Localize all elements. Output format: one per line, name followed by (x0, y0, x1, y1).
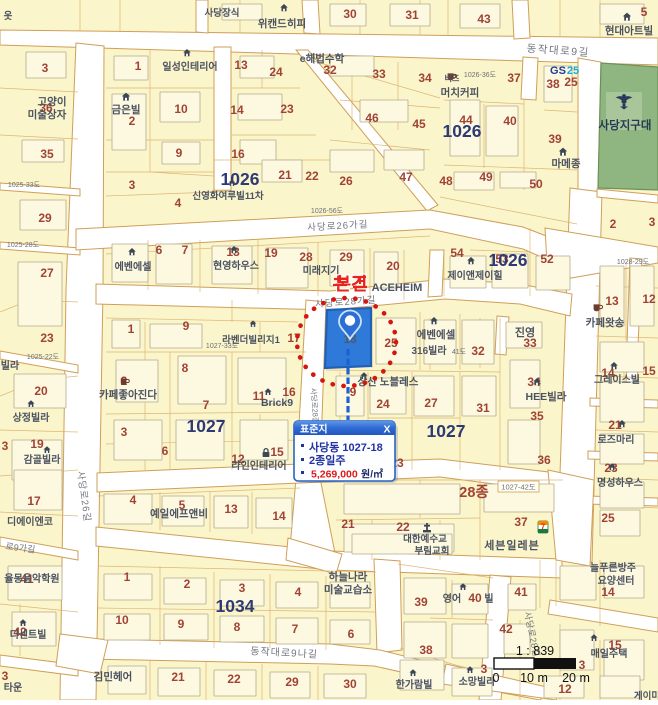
svg-text:원/㎡: 원/㎡ (361, 468, 383, 481)
svg-text:30: 30 (343, 7, 357, 21)
svg-text:52: 52 (540, 252, 554, 266)
svg-text:세븐일레븐: 세븐일레븐 (484, 538, 540, 552)
svg-text:Brick9: Brick9 (261, 397, 293, 409)
svg-text:3: 3 (481, 662, 488, 676)
svg-text:에벤에셀: 에벤에셀 (417, 328, 456, 341)
svg-text:1026: 1026 (221, 169, 260, 189)
svg-text:32: 32 (323, 63, 337, 77)
svg-text:HEE빌라: HEE빌라 (526, 390, 567, 403)
svg-text:1: 1 (128, 322, 135, 336)
svg-text:디에이엔코: 디에이엔코 (7, 515, 53, 528)
svg-text:4: 4 (130, 493, 137, 507)
svg-text:10: 10 (115, 613, 129, 627)
svg-text:1025-28도: 1025-28도 (7, 241, 40, 249)
svg-text:6: 6 (162, 444, 169, 458)
svg-text:9: 9 (183, 319, 190, 333)
svg-text:33: 33 (372, 67, 386, 81)
svg-text:진영: 진영 (515, 325, 535, 339)
svg-text:39: 39 (548, 132, 562, 146)
svg-text:사당지구대: 사당지구대 (599, 118, 652, 132)
svg-text:에벤에셀: 에벤에셀 (115, 260, 152, 273)
svg-text:미래지기: 미래지기 (303, 264, 340, 277)
svg-text:29: 29 (38, 211, 52, 225)
svg-text:21: 21 (171, 670, 185, 684)
svg-text:소망빌라: 소망빌라 (459, 675, 497, 688)
svg-text:26: 26 (339, 174, 353, 188)
svg-text:1028-29도: 1028-29도 (617, 258, 650, 266)
svg-text:상정빌라: 상정빌라 (13, 411, 51, 424)
svg-text:예일에프앤비: 예일에프앤비 (150, 507, 208, 520)
svg-text:게이미: 게이미 (634, 690, 658, 700)
svg-text:고양이: 고양이 (38, 95, 67, 108)
svg-text:1 : 839: 1 : 839 (516, 644, 554, 658)
svg-text:1027: 1027 (427, 421, 466, 441)
svg-text:금은빌: 금은빌 (112, 103, 141, 116)
svg-text:e해법수학: e해법수학 (300, 52, 345, 65)
svg-text:39: 39 (414, 595, 428, 609)
svg-text:8: 8 (234, 620, 241, 634)
svg-text:3: 3 (239, 581, 246, 595)
svg-text:40: 40 (468, 591, 482, 605)
svg-text:1034: 1034 (216, 596, 255, 616)
svg-text:14: 14 (272, 509, 286, 523)
svg-text:카페좋아진다: 카페좋아진다 (99, 388, 157, 401)
svg-text:37: 37 (514, 515, 528, 529)
svg-text:31: 31 (476, 401, 490, 415)
svg-text:48: 48 (439, 174, 453, 188)
svg-text:한가람빌: 한가람빌 (396, 678, 433, 691)
svg-text:1026: 1026 (443, 121, 482, 141)
svg-text:35: 35 (40, 147, 54, 161)
svg-text:28: 28 (299, 250, 313, 264)
svg-text:24: 24 (376, 397, 390, 411)
svg-text:41: 41 (514, 585, 528, 599)
svg-text:34: 34 (418, 71, 432, 85)
svg-text:대한예수교: 대한예수교 (403, 533, 447, 545)
svg-text:현영하우스: 현영하우스 (213, 259, 259, 272)
svg-text:35: 35 (530, 409, 544, 423)
svg-text:3: 3 (121, 425, 128, 439)
svg-text:49: 49 (479, 170, 493, 184)
svg-text:하늘나라: 하늘나라 (329, 570, 368, 583)
svg-text:13: 13 (224, 502, 238, 516)
svg-text:1: 1 (124, 570, 131, 584)
svg-text:40: 40 (503, 114, 517, 128)
svg-text:16: 16 (231, 147, 245, 161)
svg-text:2: 2 (610, 217, 617, 231)
svg-text:8: 8 (182, 361, 189, 375)
svg-text:15: 15 (270, 445, 284, 459)
svg-text:21: 21 (278, 168, 292, 182)
svg-text:타운: 타운 (4, 681, 22, 694)
svg-text:21: 21 (341, 517, 355, 531)
svg-text:1026-56도: 1026-56도 (311, 207, 344, 215)
svg-text:7: 7 (292, 622, 299, 636)
svg-text:15: 15 (642, 364, 656, 378)
svg-text:명성하우스: 명성하우스 (597, 476, 643, 489)
svg-text:2: 2 (129, 114, 136, 128)
svg-text:로즈마리: 로즈마리 (598, 433, 635, 446)
svg-text:9: 9 (176, 146, 183, 160)
svg-text:5,269,000: 5,269,000 (311, 469, 358, 481)
svg-text:9: 9 (178, 617, 185, 631)
svg-text:1027-42도: 1027-42도 (501, 483, 536, 492)
svg-text:현대아트빌: 현대아트빌 (605, 24, 653, 37)
svg-text:1027: 1027 (187, 416, 226, 436)
svg-text:마메종: 마메종 (552, 157, 581, 170)
svg-text:4: 4 (295, 585, 302, 599)
svg-text:6: 6 (348, 627, 355, 641)
svg-text:2: 2 (184, 577, 191, 591)
svg-text:사당동 1027-18: 사당동 1027-18 (309, 440, 383, 454)
svg-text:3: 3 (129, 178, 136, 192)
svg-text:23: 23 (40, 331, 54, 345)
svg-text:위캔드히피: 위캔드히피 (258, 17, 306, 30)
svg-text:옷: 옷 (4, 11, 13, 22)
svg-text:37: 37 (507, 71, 521, 85)
svg-text:7: 7 (203, 398, 210, 412)
svg-text:32: 32 (471, 344, 485, 358)
svg-text:영어: 영어 (443, 592, 461, 605)
svg-text:23: 23 (280, 102, 294, 116)
svg-text:카페왓송: 카페왓송 (586, 316, 625, 329)
svg-text:29: 29 (285, 675, 299, 689)
svg-text:41도: 41도 (452, 348, 467, 356)
svg-text:디센트빌: 디센트빌 (10, 628, 47, 641)
svg-text:그레이스빌: 그레이스빌 (594, 373, 640, 386)
svg-text:10 m: 10 m (520, 671, 548, 685)
svg-text:13: 13 (234, 58, 248, 72)
svg-text:신영화여루빌11차: 신영화여루빌11차 (192, 190, 263, 202)
svg-text:3: 3 (2, 669, 9, 683)
svg-text:감골빌라: 감골빌라 (24, 453, 62, 466)
svg-text:25: 25 (567, 65, 579, 77)
svg-text:1: 1 (135, 59, 142, 73)
svg-text:7: 7 (182, 243, 189, 257)
svg-text:25: 25 (601, 511, 615, 525)
svg-text:라벤더빌리지1: 라벤더빌리지1 (222, 334, 280, 346)
svg-text:X: X (383, 424, 390, 436)
svg-text:6: 6 (156, 243, 163, 257)
svg-text:미술상자: 미술상자 (28, 108, 67, 121)
svg-text:빌라: 빌라 (1, 359, 20, 372)
svg-text:매일주택: 매일주택 (591, 647, 628, 660)
svg-text:54: 54 (450, 246, 464, 260)
svg-text:0: 0 (493, 671, 500, 685)
svg-text:GS: GS (550, 65, 566, 77)
svg-text:38: 38 (419, 643, 433, 657)
svg-text:미술교습소: 미술교습소 (324, 583, 373, 596)
svg-text:22: 22 (305, 169, 319, 183)
svg-text:19: 19 (30, 437, 44, 451)
svg-text:19: 19 (264, 246, 278, 260)
svg-text:14: 14 (230, 103, 244, 117)
svg-text:제이앤제이힐: 제이앤제이힐 (447, 269, 502, 282)
svg-text:1025-22도: 1025-22도 (27, 353, 60, 361)
svg-text:25: 25 (564, 75, 578, 89)
svg-text:10: 10 (174, 102, 188, 116)
svg-text:표준지: 표준지 (300, 423, 328, 436)
svg-text:43: 43 (477, 12, 491, 26)
svg-text:38: 38 (546, 77, 560, 91)
svg-text:30: 30 (343, 677, 357, 691)
svg-text:3: 3 (649, 215, 656, 229)
svg-text:46: 46 (365, 111, 379, 125)
svg-text:ACEHEIM: ACEHEIM (372, 282, 423, 294)
svg-text:45: 45 (412, 117, 426, 131)
svg-text:22: 22 (396, 520, 410, 534)
svg-text:20 m: 20 m (562, 671, 590, 685)
svg-text:42: 42 (499, 622, 513, 636)
svg-text:47: 47 (399, 170, 413, 184)
svg-text:4: 4 (175, 196, 182, 210)
svg-text:29: 29 (339, 250, 353, 264)
svg-text:1026-36도: 1026-36도 (464, 71, 497, 79)
svg-text:1026: 1026 (489, 250, 528, 270)
svg-text:7: 7 (541, 523, 546, 532)
svg-text:24: 24 (269, 65, 283, 79)
svg-text:17: 17 (27, 494, 41, 508)
svg-text:일성인테리어: 일성인테리어 (162, 60, 217, 73)
svg-text:3: 3 (2, 439, 9, 453)
svg-text:3: 3 (42, 61, 49, 75)
svg-text:20: 20 (386, 259, 400, 273)
svg-text:요양센터: 요양센터 (598, 574, 635, 587)
svg-text:2종일주: 2종일주 (309, 453, 345, 467)
svg-text:13: 13 (605, 294, 619, 308)
svg-text:50: 50 (529, 177, 543, 191)
svg-text:27: 27 (40, 266, 54, 280)
svg-text:사당장식: 사당장식 (205, 7, 240, 19)
svg-text:머치커피: 머치커피 (441, 86, 480, 99)
svg-text:라인인테리어: 라인인테리어 (231, 459, 286, 472)
svg-text:20: 20 (34, 384, 48, 398)
svg-text:31: 31 (405, 8, 419, 22)
svg-text:늘푸른방주: 늘푸른방주 (590, 561, 636, 574)
svg-text:율몽음악학원: 율몽음악학원 (4, 572, 59, 585)
svg-text:27: 27 (424, 396, 438, 410)
svg-text:12: 12 (642, 292, 656, 306)
svg-text:5: 5 (641, 5, 648, 19)
svg-text:316빌라: 316빌라 (411, 344, 447, 357)
svg-text:14: 14 (601, 585, 615, 599)
svg-text:1025-33도: 1025-33도 (8, 181, 41, 189)
svg-text:버즈: 버즈 (445, 73, 460, 83)
svg-text:부림교회: 부림교회 (415, 545, 450, 557)
svg-text:빌: 빌 (484, 592, 493, 605)
svg-text:17: 17 (287, 331, 301, 345)
svg-text:36: 36 (537, 453, 551, 467)
svg-text:3: 3 (579, 658, 586, 672)
svg-text:28종: 28종 (459, 484, 488, 501)
svg-text:김민헤어: 김민헤어 (94, 670, 133, 683)
svg-text:22: 22 (227, 672, 241, 686)
